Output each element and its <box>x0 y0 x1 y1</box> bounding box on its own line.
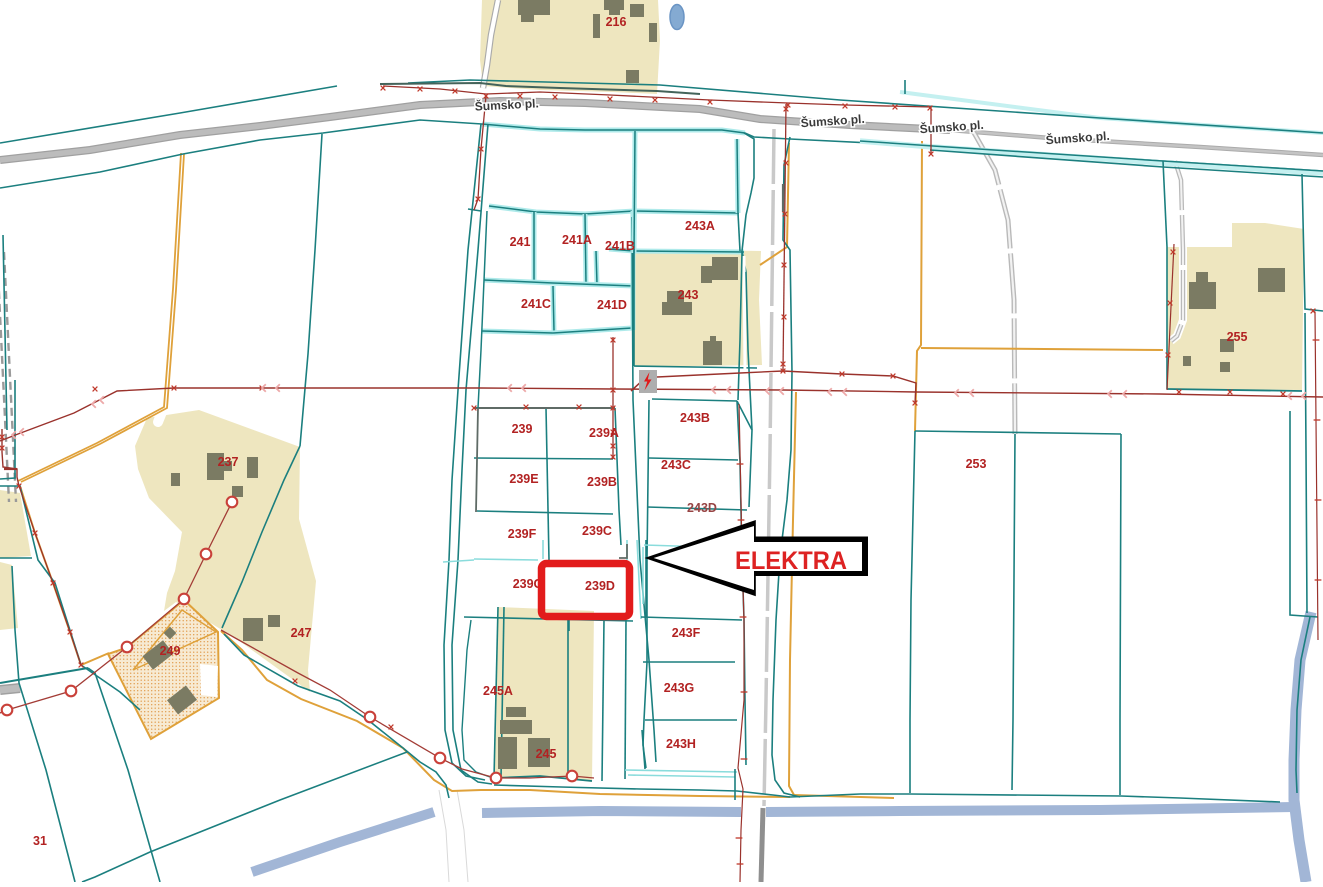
svg-text:31: 31 <box>33 834 47 848</box>
svg-text:243H: 243H <box>666 737 696 751</box>
svg-text:239A: 239A <box>589 426 619 440</box>
svg-text:253: 253 <box>966 457 987 471</box>
svg-text:243B: 243B <box>680 411 710 425</box>
svg-text:249: 249 <box>160 644 181 658</box>
svg-text:243C: 243C <box>661 458 691 472</box>
svg-text:245A: 245A <box>483 684 513 698</box>
svg-text:241D: 241D <box>597 298 627 312</box>
svg-text:255: 255 <box>1227 330 1248 344</box>
svg-text:241C: 241C <box>521 297 551 311</box>
svg-text:243D: 243D <box>687 501 717 515</box>
svg-text:243G: 243G <box>664 681 695 695</box>
svg-text:239F: 239F <box>508 527 537 541</box>
svg-text:ELEKTRA: ELEKTRA <box>735 547 847 575</box>
svg-text:245: 245 <box>536 747 557 761</box>
svg-text:243: 243 <box>678 288 699 302</box>
svg-text:239E: 239E <box>509 472 538 486</box>
svg-text:239D: 239D <box>585 579 615 593</box>
svg-text:243F: 243F <box>672 626 701 640</box>
svg-text:247: 247 <box>291 626 312 640</box>
svg-text:239: 239 <box>512 422 533 436</box>
svg-text:243A: 243A <box>685 219 715 233</box>
svg-text:239C: 239C <box>582 524 612 538</box>
svg-text:241B: 241B <box>605 239 635 253</box>
svg-text:237: 237 <box>218 455 239 469</box>
svg-text:241: 241 <box>510 235 531 249</box>
svg-text:216: 216 <box>606 15 627 29</box>
svg-text:239B: 239B <box>587 475 617 489</box>
svg-text:241A: 241A <box>562 233 592 247</box>
